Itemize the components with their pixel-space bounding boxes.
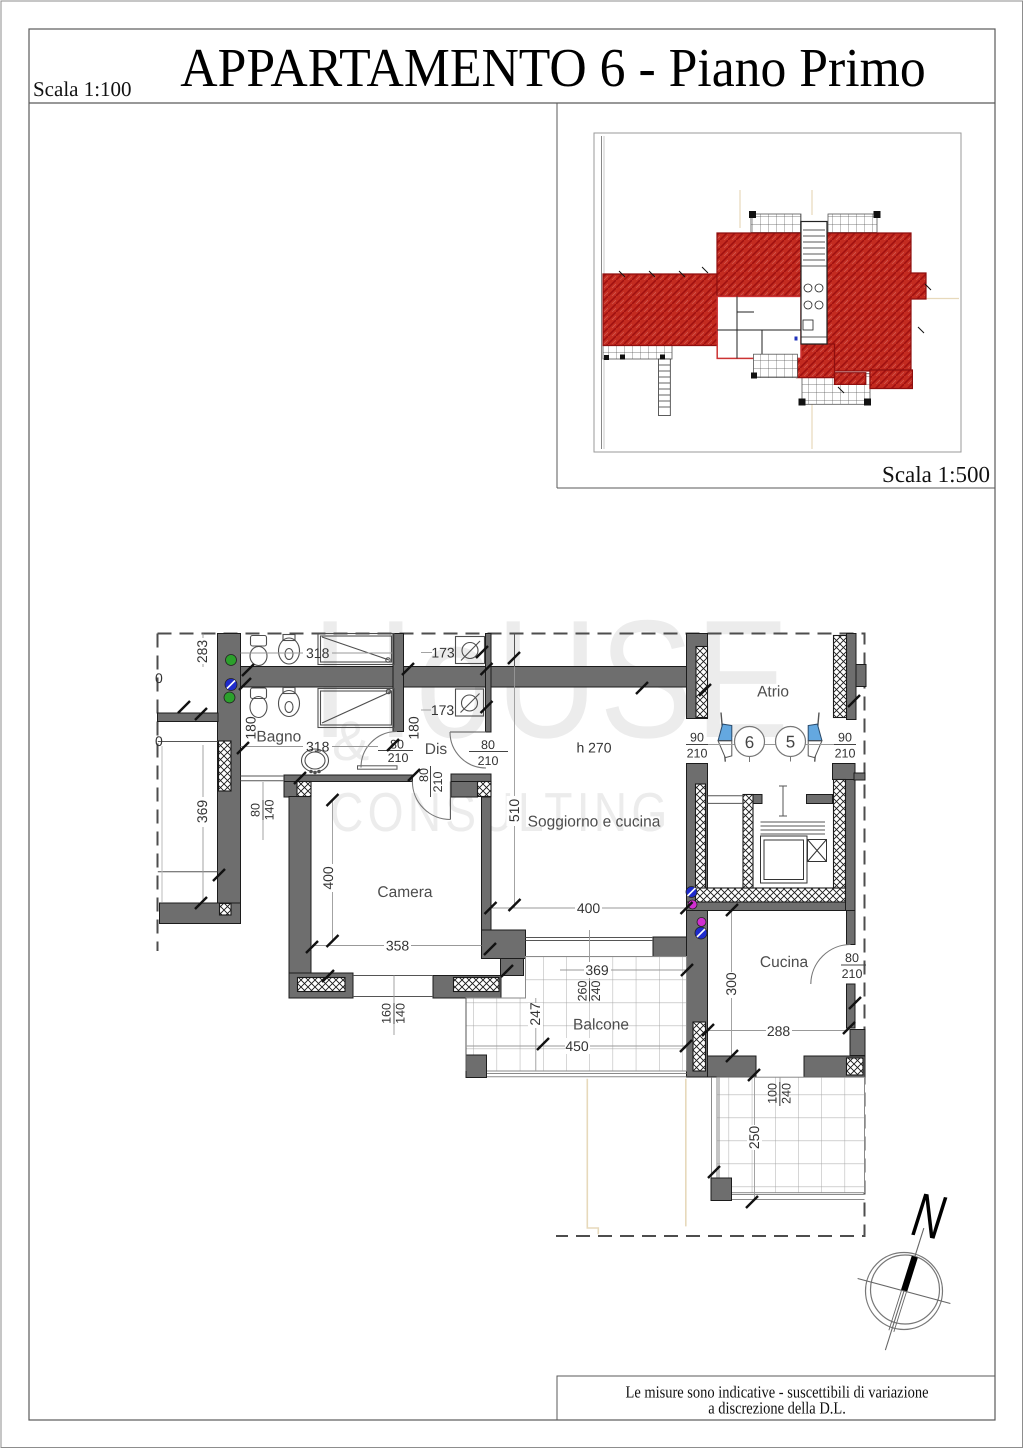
svg-text:400: 400 xyxy=(320,866,336,890)
svg-text:283: 283 xyxy=(194,640,210,664)
svg-text:369: 369 xyxy=(585,962,609,978)
svg-text:Scala 1:100: Scala 1:100 xyxy=(33,77,132,101)
svg-text:140: 140 xyxy=(394,1003,408,1024)
svg-text:Soggiorno e cucina: Soggiorno e cucina xyxy=(528,814,661,831)
svg-text:6: 6 xyxy=(745,733,754,752)
svg-text:N: N xyxy=(908,1180,950,1253)
svg-text:Balcone: Balcone xyxy=(573,1017,629,1034)
svg-text:90: 90 xyxy=(838,731,852,745)
svg-text:80: 80 xyxy=(845,951,859,965)
svg-text:260: 260 xyxy=(576,981,590,1002)
svg-text:210: 210 xyxy=(478,754,499,768)
svg-text:Dis: Dis xyxy=(425,741,448,758)
svg-text:80: 80 xyxy=(249,803,263,817)
svg-text:Bagno: Bagno xyxy=(256,729,301,746)
svg-text:318: 318 xyxy=(306,739,330,755)
svg-text:140: 140 xyxy=(263,800,277,821)
svg-text:240: 240 xyxy=(589,981,603,1002)
svg-text:CONSULTING: CONSULTING xyxy=(330,781,671,843)
svg-text:300: 300 xyxy=(723,972,739,996)
svg-text:240: 240 xyxy=(780,1083,794,1104)
svg-text:a discrezione della D.L.: a discrezione della D.L. xyxy=(708,1399,846,1418)
svg-text:Camera: Camera xyxy=(377,884,433,901)
svg-text:358: 358 xyxy=(386,938,410,954)
svg-text:APPARTAMENTO 6 - Piano Primo: APPARTAMENTO 6 - Piano Primo xyxy=(180,37,925,98)
svg-text:0: 0 xyxy=(155,733,163,749)
svg-text:369: 369 xyxy=(194,800,210,824)
svg-text:173: 173 xyxy=(431,702,455,718)
svg-text:&: & xyxy=(332,709,369,772)
svg-text:450: 450 xyxy=(565,1038,589,1054)
svg-text:5: 5 xyxy=(786,733,795,752)
svg-text:Cucina: Cucina xyxy=(760,954,809,971)
svg-text:210: 210 xyxy=(687,747,708,761)
svg-text:0: 0 xyxy=(155,670,163,686)
svg-text:100: 100 xyxy=(766,1083,780,1104)
svg-text:318: 318 xyxy=(306,645,330,661)
svg-text:173: 173 xyxy=(431,645,455,661)
svg-text:247: 247 xyxy=(527,1002,543,1026)
svg-text:180: 180 xyxy=(405,716,421,740)
svg-text:210: 210 xyxy=(842,967,863,981)
svg-text:210: 210 xyxy=(835,747,856,761)
svg-text:510: 510 xyxy=(506,799,522,823)
svg-text:210: 210 xyxy=(431,772,445,793)
svg-text:h 270: h 270 xyxy=(576,740,611,756)
svg-text:160: 160 xyxy=(380,1003,394,1024)
svg-text:Scala 1:500: Scala 1:500 xyxy=(882,462,990,487)
svg-text:250: 250 xyxy=(746,1126,762,1150)
svg-text:210: 210 xyxy=(388,751,409,765)
svg-text:80: 80 xyxy=(481,738,495,752)
svg-text:400: 400 xyxy=(577,900,601,916)
svg-text:288: 288 xyxy=(767,1023,791,1039)
svg-text:Atrio: Atrio xyxy=(757,684,789,701)
svg-text:90: 90 xyxy=(690,731,704,745)
